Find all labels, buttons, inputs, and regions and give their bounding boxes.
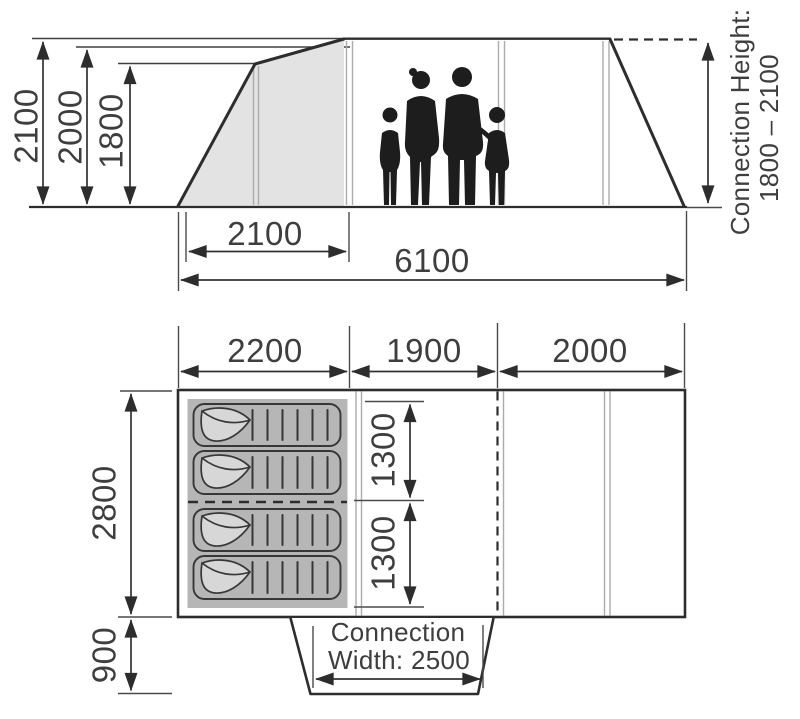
dim-label-bed-1300-a: 1300 bbox=[365, 412, 402, 487]
dim-label-height-1800: 1800 bbox=[93, 93, 130, 168]
dim-height-2000: 2000 bbox=[52, 50, 89, 204]
connection-tunnel: Connection Width: 2500 bbox=[291, 617, 494, 694]
tent-rear-slope bbox=[610, 39, 684, 206]
side-view: 2100 2000 1800 Connection Height: 1800 –… bbox=[8, 9, 785, 291]
diagram-canvas: 2100 2000 1800 Connection Height: 1800 –… bbox=[0, 0, 800, 719]
dim-label-bed-1300-b: 1300 bbox=[365, 515, 402, 590]
dim-porch-width: 2100 bbox=[186, 212, 349, 262]
floor-plan: 2200 1900 2000 2800 900 1300 1300 bbox=[86, 323, 685, 694]
dim-connection-height: Connection Height: 1800 – 2100 bbox=[614, 9, 784, 236]
dim-label-width-2000: 2000 bbox=[552, 332, 627, 369]
dim-label-width-2200: 2200 bbox=[227, 332, 302, 369]
dim-label-porch-width: 2100 bbox=[227, 215, 302, 252]
connection-height-range: 1800 – 2100 bbox=[754, 54, 784, 202]
dim-section-widths: 2200 1900 2000 bbox=[179, 323, 685, 388]
dim-label-depth-900: 900 bbox=[86, 627, 123, 684]
dim-label-width-1900: 1900 bbox=[386, 332, 461, 369]
connection-height-title: Connection Height: bbox=[725, 9, 755, 236]
dim-height-2100: 2100 bbox=[8, 42, 45, 204]
tent-dimensions-diagram: 2100 2000 1800 Connection Height: 1800 –… bbox=[0, 0, 800, 719]
connection-width-title: Connection bbox=[331, 617, 466, 647]
dim-label-depth-2800: 2800 bbox=[86, 465, 123, 540]
dim-label-height-2100: 2100 bbox=[8, 88, 45, 163]
connection-width-value: Width: 2500 bbox=[328, 645, 470, 675]
dim-label-total-length: 6100 bbox=[394, 242, 469, 279]
family-silhouette-icon bbox=[380, 67, 509, 205]
dim-inner-depth: 2800 bbox=[86, 391, 172, 617]
dim-canopy-depth: 900 bbox=[86, 620, 172, 694]
dim-label-height-2000: 2000 bbox=[52, 89, 89, 164]
dim-height-1800: 1800 bbox=[93, 67, 130, 205]
